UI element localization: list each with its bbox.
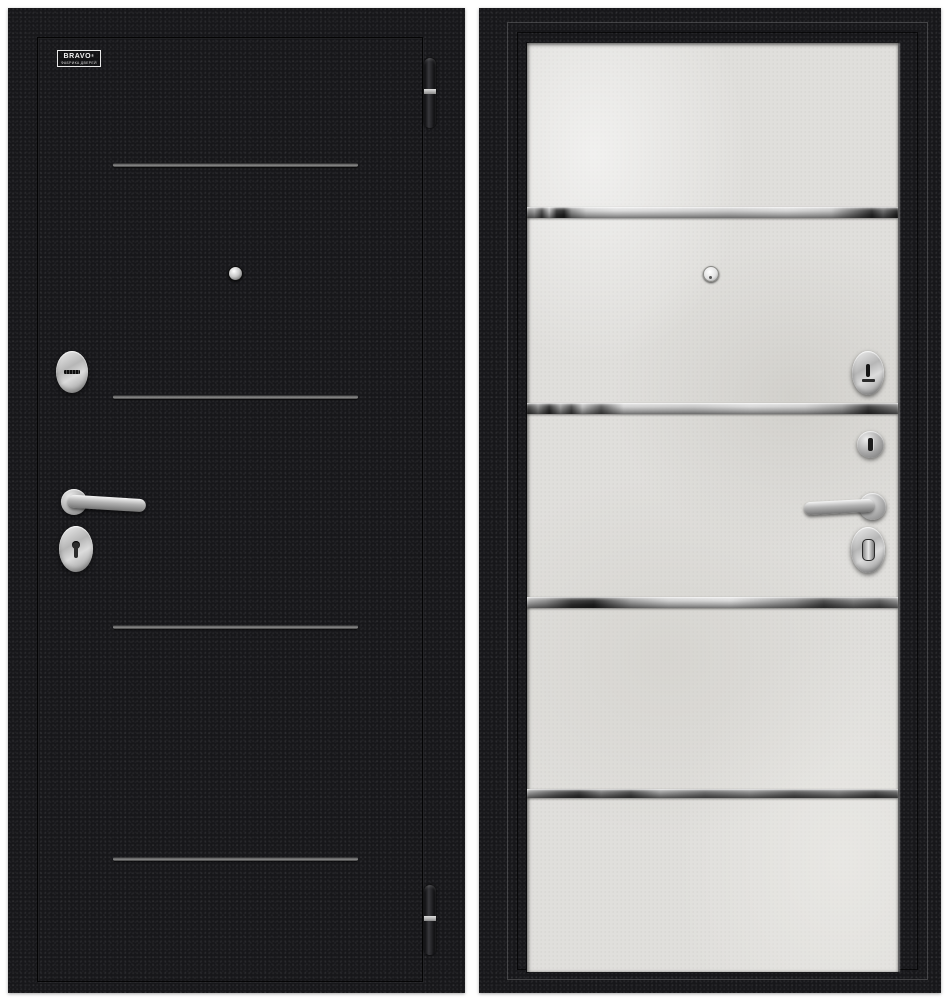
keyhole-base-icon bbox=[862, 379, 875, 382]
mirror-insert bbox=[527, 207, 898, 218]
decor-groove bbox=[113, 395, 358, 399]
hinge-bottom bbox=[424, 885, 436, 955]
door-exterior-panel: BRAVO® ФАБРИКА ДВЕРЕЙ bbox=[8, 8, 465, 993]
decor-groove bbox=[113, 857, 358, 861]
mirror-insert bbox=[527, 597, 898, 608]
decor-groove bbox=[113, 163, 358, 167]
concrete-panel bbox=[527, 43, 898, 972]
product-image: BRAVO® ФАБРИКА ДВЕРЕЙ bbox=[0, 0, 945, 1000]
mirror-insert bbox=[527, 403, 898, 414]
thumbturn-knob bbox=[862, 539, 875, 561]
cylinder-knob bbox=[857, 431, 884, 458]
decor-groove bbox=[113, 625, 358, 629]
knob-slot-icon bbox=[868, 438, 873, 451]
keyhole-slot-icon bbox=[74, 547, 78, 558]
brand-name: BRAVO® bbox=[61, 53, 97, 60]
brand-logo: BRAVO® ФАБРИКА ДВЕРЕЙ bbox=[57, 50, 101, 67]
brand-tagline: ФАБРИКА ДВЕРЕЙ bbox=[61, 61, 97, 65]
hinge-band bbox=[424, 916, 436, 921]
thumbturn-escutcheon bbox=[851, 527, 885, 573]
door-leaf-edge-line bbox=[37, 37, 423, 982]
door-interior-panel bbox=[479, 8, 941, 993]
cylinder-escutcheon bbox=[56, 351, 88, 393]
peephole bbox=[228, 266, 243, 281]
peephole bbox=[703, 266, 719, 282]
cylinder-escutcheon bbox=[852, 351, 884, 395]
mirror-insert bbox=[527, 789, 898, 798]
hinge-band bbox=[424, 89, 436, 94]
registered-mark: ® bbox=[91, 54, 94, 58]
keyhole-slot-icon bbox=[866, 364, 870, 377]
keyhole-escutcheon bbox=[59, 526, 93, 572]
keyhole-slot-icon bbox=[64, 370, 80, 374]
hinge-top bbox=[424, 58, 436, 128]
